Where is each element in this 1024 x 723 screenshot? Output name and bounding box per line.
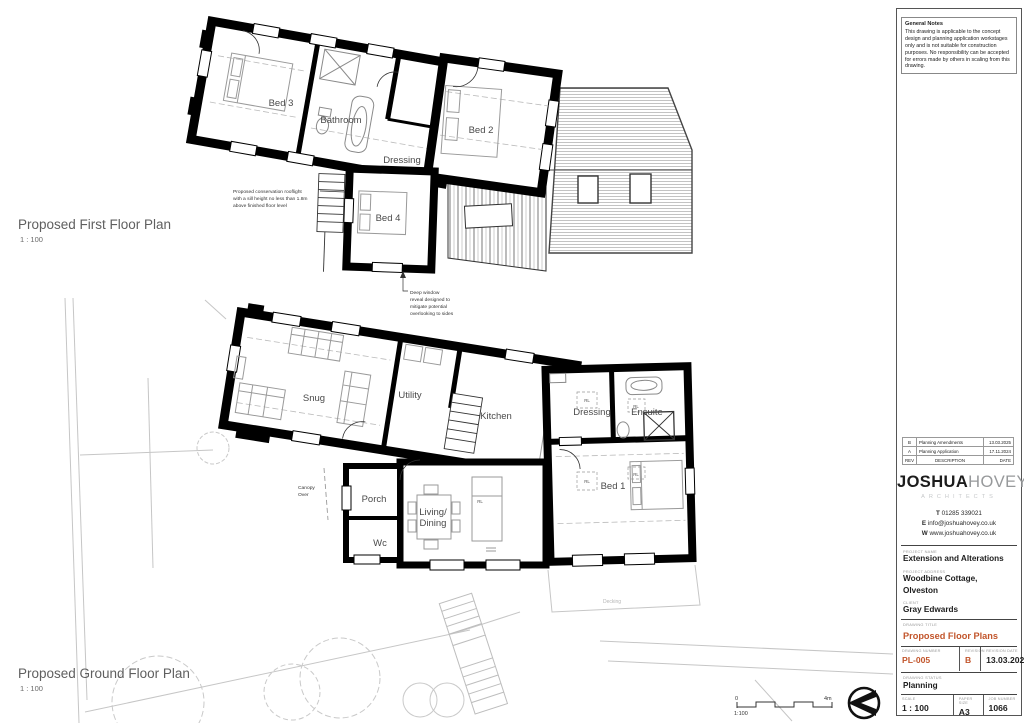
canopy-annotation: Canopy Over: [298, 485, 315, 498]
drawing-title: Proposed Floor Plans: [903, 631, 998, 641]
first-floor-stairs: [315, 174, 344, 273]
room-label-bathroom: Bathroom: [320, 115, 361, 126]
contact-value: www.joshuahovey.co.uk: [929, 530, 996, 537]
paper-size-cell: PAPER SIZE A3: [953, 695, 983, 716]
divider: [901, 545, 1017, 546]
ground-floor-scale: 1 : 100: [20, 684, 43, 693]
room-label-dressing-gf: Dressing: [573, 407, 611, 418]
project-address-2: Olveston: [903, 586, 938, 595]
revision-description: Planning Amendments: [917, 438, 984, 447]
revision-rev: REV: [903, 456, 917, 465]
rl-label: RL: [477, 499, 483, 504]
general-notes-body: This drawing is applicable to the concep…: [905, 29, 1013, 70]
rl-label: RL: [584, 398, 590, 403]
revision-row: B Planning Amendments 13.03.2025: [903, 438, 1014, 447]
revision-rev: B: [903, 438, 917, 447]
annotation-line: Deep window: [410, 290, 440, 296]
drawing-number-cell: DRAWING NUMBER PL-005: [897, 647, 959, 671]
scale-bar-max: 4m: [824, 696, 832, 702]
contact-phone: T 01285 339021: [897, 509, 1021, 519]
contact-key: T: [936, 510, 940, 517]
ground-floor-right-wing: [546, 366, 697, 567]
rl-label: RL: [633, 472, 639, 477]
logo-subtitle: ARCHITECTS: [897, 494, 1021, 500]
annotation-line: Proposed conservation rooflight: [233, 189, 302, 195]
canopy-line: [324, 468, 328, 520]
revision-label: REVISION: [965, 649, 980, 653]
room-label-wc: Wc: [373, 538, 387, 549]
room-label-snug: Snug: [303, 393, 325, 404]
room-label-bed2: Bed 2: [469, 125, 494, 136]
annotation-line: reveal designed to: [410, 297, 450, 303]
scale-bar: 0 4m 1:100: [734, 696, 832, 717]
room-label-ensuite: Ensuite: [631, 407, 663, 418]
contact-key: W: [922, 530, 928, 537]
client: Gray Edwards: [903, 605, 958, 614]
room-label-living: Living/: [419, 507, 447, 518]
decking-label: Decking: [603, 599, 621, 605]
drawing-status-label: DRAWING STATUS: [903, 675, 942, 680]
job-number-label: JOB NUMBER: [989, 697, 1021, 701]
annotation-line: Canopy: [298, 485, 315, 491]
deep-window-annotation: Deep window reveal designed to mitigate …: [400, 271, 454, 317]
revision-date: 13.03.2025: [986, 655, 1021, 665]
drawing-status: Planning: [903, 681, 938, 690]
ground-floor-title: Proposed Ground Floor Plan: [18, 666, 190, 681]
room-label-bed1: Bed 1: [601, 481, 626, 492]
drawing-sheet: Bed 3 Bathroom Dressing Bed 2 Bed 4 Prop…: [0, 0, 1024, 723]
revision-header-row: REV DESCRIPTION DATE: [903, 456, 1014, 465]
first-floor-scale: 1 : 100: [20, 235, 43, 244]
ground-floor-plan: RL RL RL RL RL Snug Utility Kitchen Dres…: [18, 301, 697, 693]
revision-rev: A: [903, 447, 917, 456]
scale-bar-zero: 0: [735, 696, 738, 702]
project-name: Extension and Alterations: [903, 554, 1004, 563]
job-number-cell: JOB NUMBER 1066: [983, 695, 1021, 716]
contact-key: E: [922, 520, 926, 527]
contact-block: T 01285 339021 E info@joshuahovey.co.uk …: [897, 509, 1021, 538]
scale-row: SCALE 1 : 100 PAPER SIZE A3 JOB NUMBER 1…: [897, 695, 1021, 716]
logo: JOSHUAHOVEY: [897, 473, 1021, 492]
revision-cell: REVISION B: [959, 647, 980, 671]
room-label-porch: Porch: [362, 494, 387, 505]
drawing-number-label: DRAWING NUMBER: [902, 649, 959, 653]
room-label-dressing-ff: Dressing: [383, 155, 421, 166]
room-label-bed4: Bed 4: [376, 213, 401, 224]
revision-date-label: REVISION DATE: [986, 649, 1021, 653]
room-label-kitchen: Kitchen: [480, 411, 512, 422]
logo-hovey: HOVEY: [968, 473, 1024, 491]
site-steps: [439, 593, 507, 714]
revision-description: DESCRIPTION: [917, 456, 984, 465]
drawing-title-label: DRAWING TITLE: [903, 622, 937, 627]
title-block: General Notes This drawing is applicable…: [896, 8, 1022, 716]
scale-label: SCALE: [902, 697, 953, 701]
rl-label: RL: [584, 479, 590, 484]
room-label-utility: Utility: [398, 390, 421, 401]
revision-description: Planning Application: [917, 447, 984, 456]
divider: [901, 672, 1017, 673]
annotation-line: Over: [298, 492, 309, 498]
annotation-line: overlooking to sides: [410, 311, 454, 317]
first-floor-wing-a: [182, 15, 464, 189]
contact-email: E info@joshuahovey.co.uk: [897, 519, 1021, 529]
logo-joshua: JOSHUA: [897, 473, 968, 491]
plan-canvas: Bed 3 Bathroom Dressing Bed 2 Bed 4 Prop…: [0, 0, 1024, 723]
room-label-bed3: Bed 3: [269, 98, 294, 109]
contact-web: W www.joshuahovey.co.uk: [897, 529, 1021, 539]
contact-value: 01285 339021: [942, 510, 982, 517]
annotation-line: with a sill height no less than 1.8m: [233, 196, 308, 202]
general-notes-box: General Notes This drawing is applicable…: [901, 17, 1017, 74]
revision-date: 17.11.2024: [984, 447, 1014, 456]
north-arrow-icon: [848, 688, 879, 718]
rooflight-window: [578, 176, 598, 203]
drawing-number-row: DRAWING NUMBER PL-005 REVISION B REVISIO…: [897, 647, 1021, 671]
general-notes-title: General Notes: [905, 21, 1013, 27]
job-number: 1066: [989, 703, 1021, 713]
divider: [901, 619, 1017, 620]
first-floor-wing-b: [427, 53, 563, 193]
revision-table: B Planning Amendments 13.03.2025 A Plann…: [902, 437, 1014, 465]
contact-value: info@joshuahovey.co.uk: [928, 520, 996, 527]
project-address-1: Woodbine Cottage,: [903, 574, 977, 583]
drawing-number: PL-005: [902, 655, 959, 665]
paper-size-label: PAPER SIZE: [959, 697, 983, 705]
first-floor-plan: Bed 3 Bathroom Dressing Bed 2 Bed 4 Prop…: [18, 15, 692, 317]
first-floor-title: Proposed First Floor Plan: [18, 217, 171, 232]
scale-bar-ratio: 1:100: [734, 711, 748, 717]
paper-size: A3: [959, 707, 983, 717]
revision-row: A Planning Application 17.11.2024: [903, 447, 1014, 456]
roof-elevation: [549, 88, 692, 253]
annotation-line: above finished floor level: [233, 203, 287, 209]
scale-cell: SCALE 1 : 100: [897, 695, 953, 716]
revision: B: [965, 655, 980, 665]
rooflight-window: [630, 174, 651, 203]
revision-date: DATE: [984, 456, 1014, 465]
scale-value: 1 : 100: [902, 703, 953, 713]
revision-date-cell: REVISION DATE 13.03.2025: [980, 647, 1021, 671]
room-label-dining: Dining: [420, 518, 447, 529]
revision-date: 13.03.2025: [984, 438, 1014, 447]
annotation-line: mitigate potential: [410, 304, 447, 310]
